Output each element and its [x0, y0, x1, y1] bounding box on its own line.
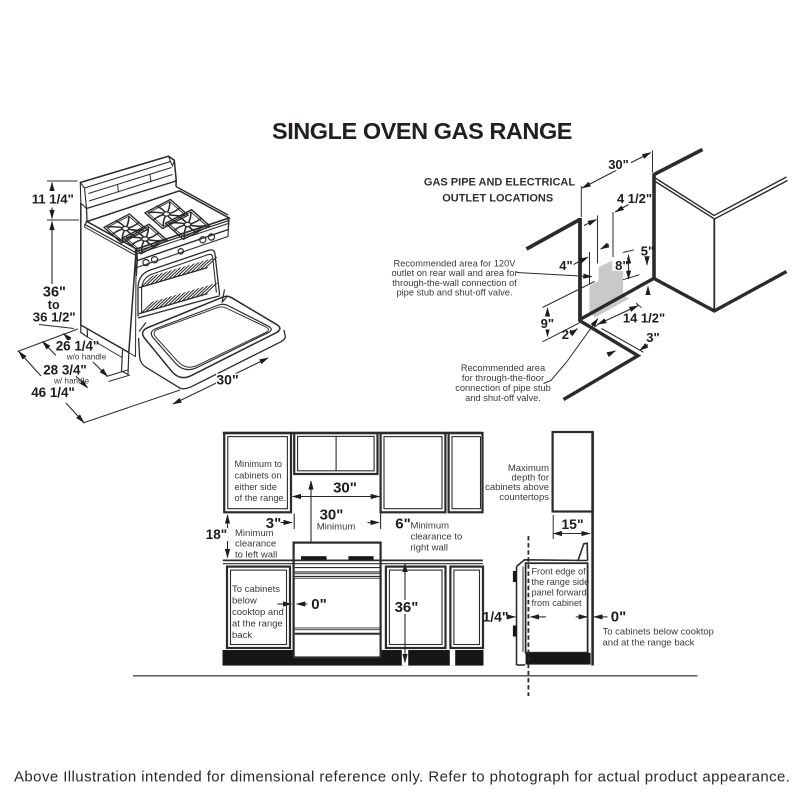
svg-text:Minimum: Minimum: [235, 528, 274, 539]
svg-text:15": 15": [561, 516, 583, 532]
svg-text:of the range.: of the range.: [235, 493, 287, 503]
svg-text:4": 4": [559, 258, 572, 273]
svg-text:and at the range back: and at the range back: [603, 638, 695, 649]
svg-text:2": 2": [562, 327, 575, 342]
svg-text:clearance: clearance: [235, 539, 276, 550]
svg-text:the range side: the range side: [532, 577, 590, 587]
svg-text:Recommended area: Recommended area: [461, 363, 546, 373]
svg-text:0": 0": [311, 596, 326, 613]
svg-text:8": 8": [615, 258, 628, 273]
svg-text:1/4": 1/4": [482, 609, 508, 625]
svg-text:outlet on rear wall and area f: outlet on rear wall and area for: [391, 268, 517, 278]
svg-text:at the range: at the range: [232, 619, 283, 630]
svg-text:36 1/2": 36 1/2": [33, 310, 76, 325]
svg-text:26 1/4": 26 1/4": [56, 339, 100, 354]
svg-text:36": 36": [395, 599, 419, 616]
svg-text:OUTLET LOCATIONS: OUTLET LOCATIONS: [442, 193, 553, 205]
svg-text:Minimum: Minimum: [317, 522, 356, 533]
svg-text:18": 18": [206, 527, 227, 542]
svg-text:6": 6": [395, 516, 410, 533]
svg-text:46 1/4": 46 1/4": [31, 385, 75, 400]
svg-text:11 1/4": 11 1/4": [32, 192, 74, 207]
svg-text:28 3/4": 28 3/4": [43, 363, 87, 378]
svg-text:SINGLE OVEN GAS RANGE: SINGLE OVEN GAS RANGE: [272, 118, 572, 144]
svg-text:5": 5": [641, 243, 654, 258]
svg-text:clearance to: clearance to: [411, 532, 463, 543]
svg-text:30": 30": [333, 480, 357, 497]
svg-text:connection of pipe stub: connection of pipe stub: [455, 383, 551, 393]
svg-text:w/o handle: w/o handle: [66, 353, 107, 362]
svg-text:4 1/2": 4 1/2": [617, 191, 652, 206]
svg-text:0": 0": [611, 609, 626, 626]
svg-text:for through-the-floor: for through-the-floor: [462, 373, 544, 383]
svg-text:30": 30": [608, 157, 629, 172]
svg-text:panel forward: panel forward: [532, 588, 587, 598]
svg-text:To cabinets below cooktop: To cabinets below cooktop: [603, 627, 714, 638]
svg-text:14 1/2": 14 1/2": [623, 311, 665, 326]
svg-text:below: below: [232, 596, 257, 607]
svg-text:to left wall: to left wall: [235, 549, 277, 560]
svg-text:Front edge of: Front edge of: [532, 567, 587, 577]
svg-text:cooktop and: cooktop and: [232, 607, 284, 618]
svg-text:3": 3": [646, 330, 659, 345]
svg-text:pipe stub and shut-off valve.: pipe stub and shut-off valve.: [396, 288, 512, 298]
svg-text:GAS PIPE AND ELECTRICAL: GAS PIPE AND ELECTRICAL: [424, 177, 575, 189]
svg-text:through-the-wall connection of: through-the-wall connection of: [392, 278, 517, 288]
svg-text:Minimum to: Minimum to: [235, 459, 282, 469]
svg-text:and shut-off valve.: and shut-off valve.: [465, 393, 541, 403]
svg-text:Minimum: Minimum: [411, 521, 450, 532]
svg-text:from cabinet: from cabinet: [532, 598, 583, 608]
svg-text:either side: either side: [235, 482, 277, 492]
svg-text:Above Illustration intended fo: Above Illustration intended for dimensio…: [14, 769, 790, 786]
svg-text:To cabinets: To cabinets: [232, 584, 280, 595]
svg-text:back: back: [232, 630, 252, 641]
svg-text:countertops: countertops: [499, 492, 549, 503]
svg-text:Recommended area for 120V: Recommended area for 120V: [394, 259, 517, 269]
svg-text:30": 30": [216, 372, 238, 388]
svg-text:right wall: right wall: [411, 543, 449, 554]
svg-text:9": 9": [541, 316, 554, 331]
svg-text:cabinets on: cabinets on: [235, 470, 282, 480]
